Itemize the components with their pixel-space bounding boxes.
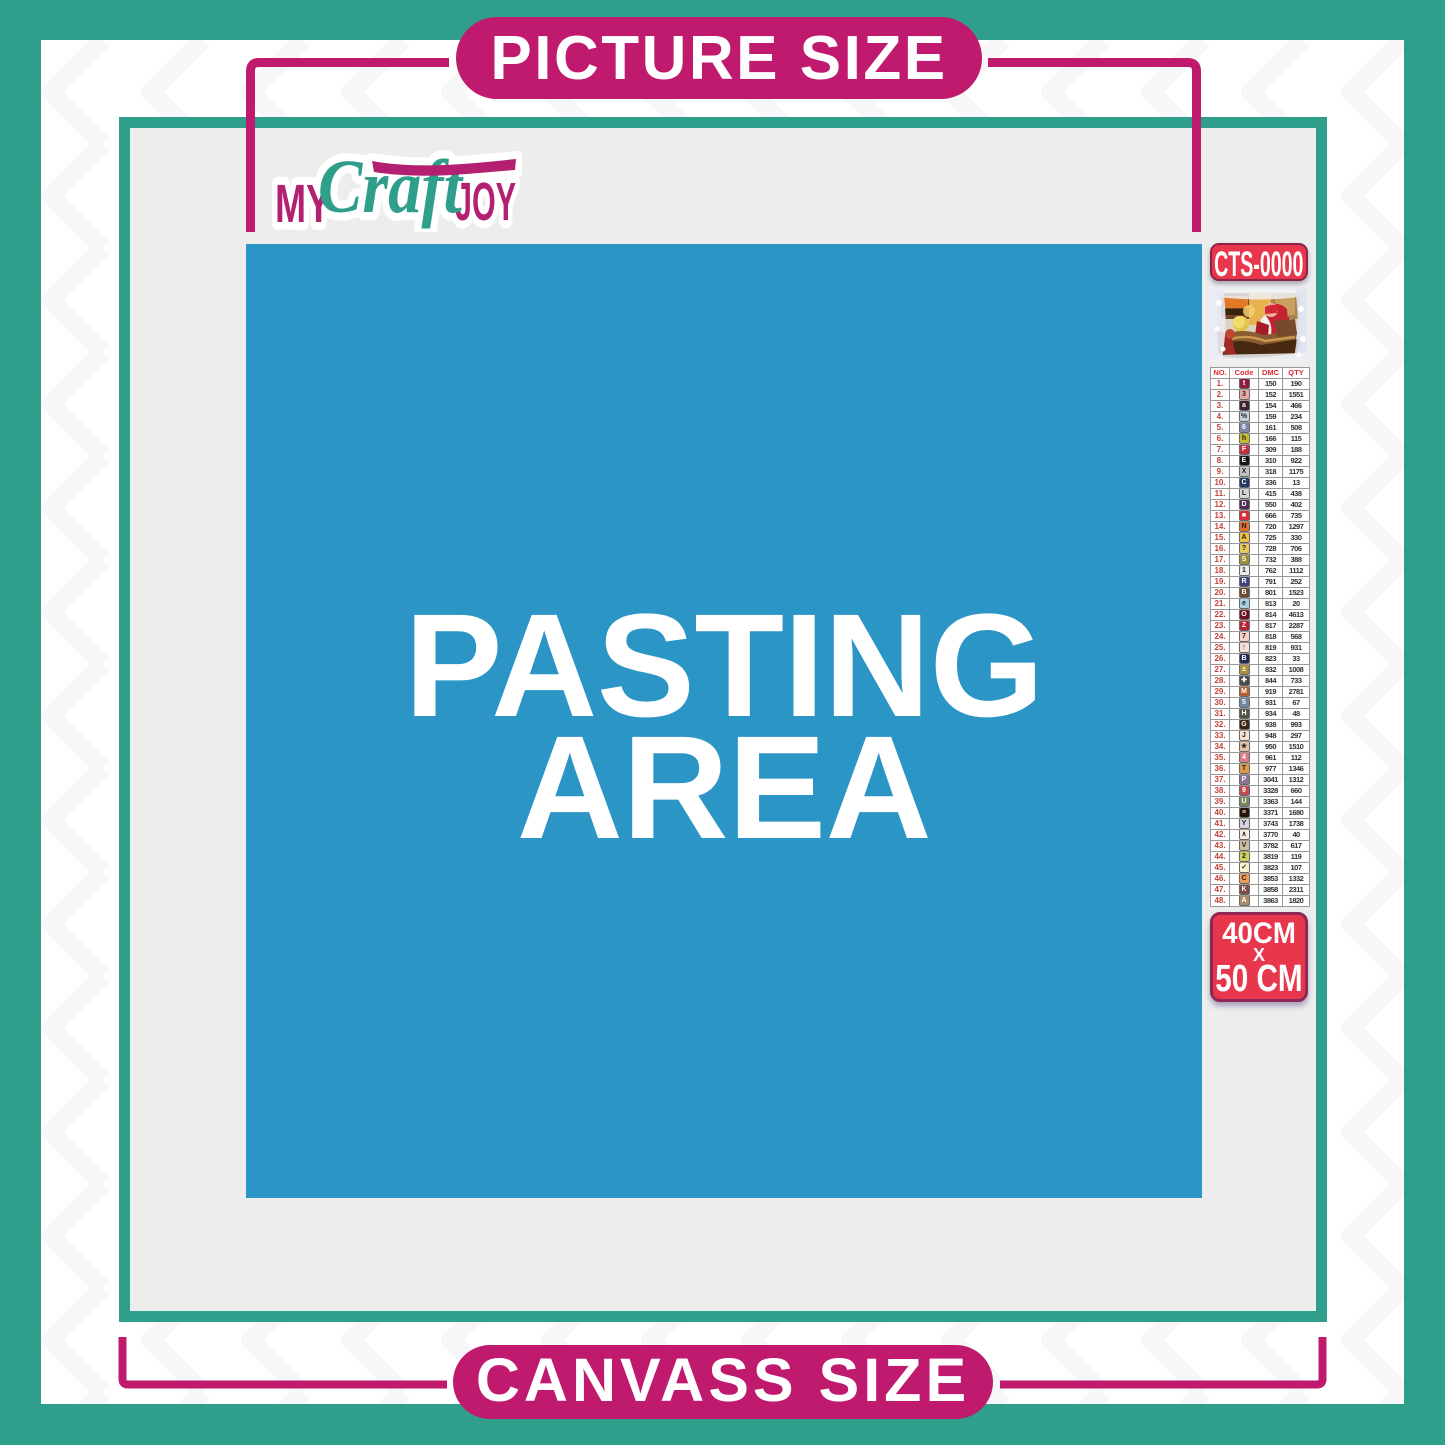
- svg-text:Craft: Craft: [318, 145, 465, 229]
- svg-text:JOY: JOY: [455, 172, 516, 232]
